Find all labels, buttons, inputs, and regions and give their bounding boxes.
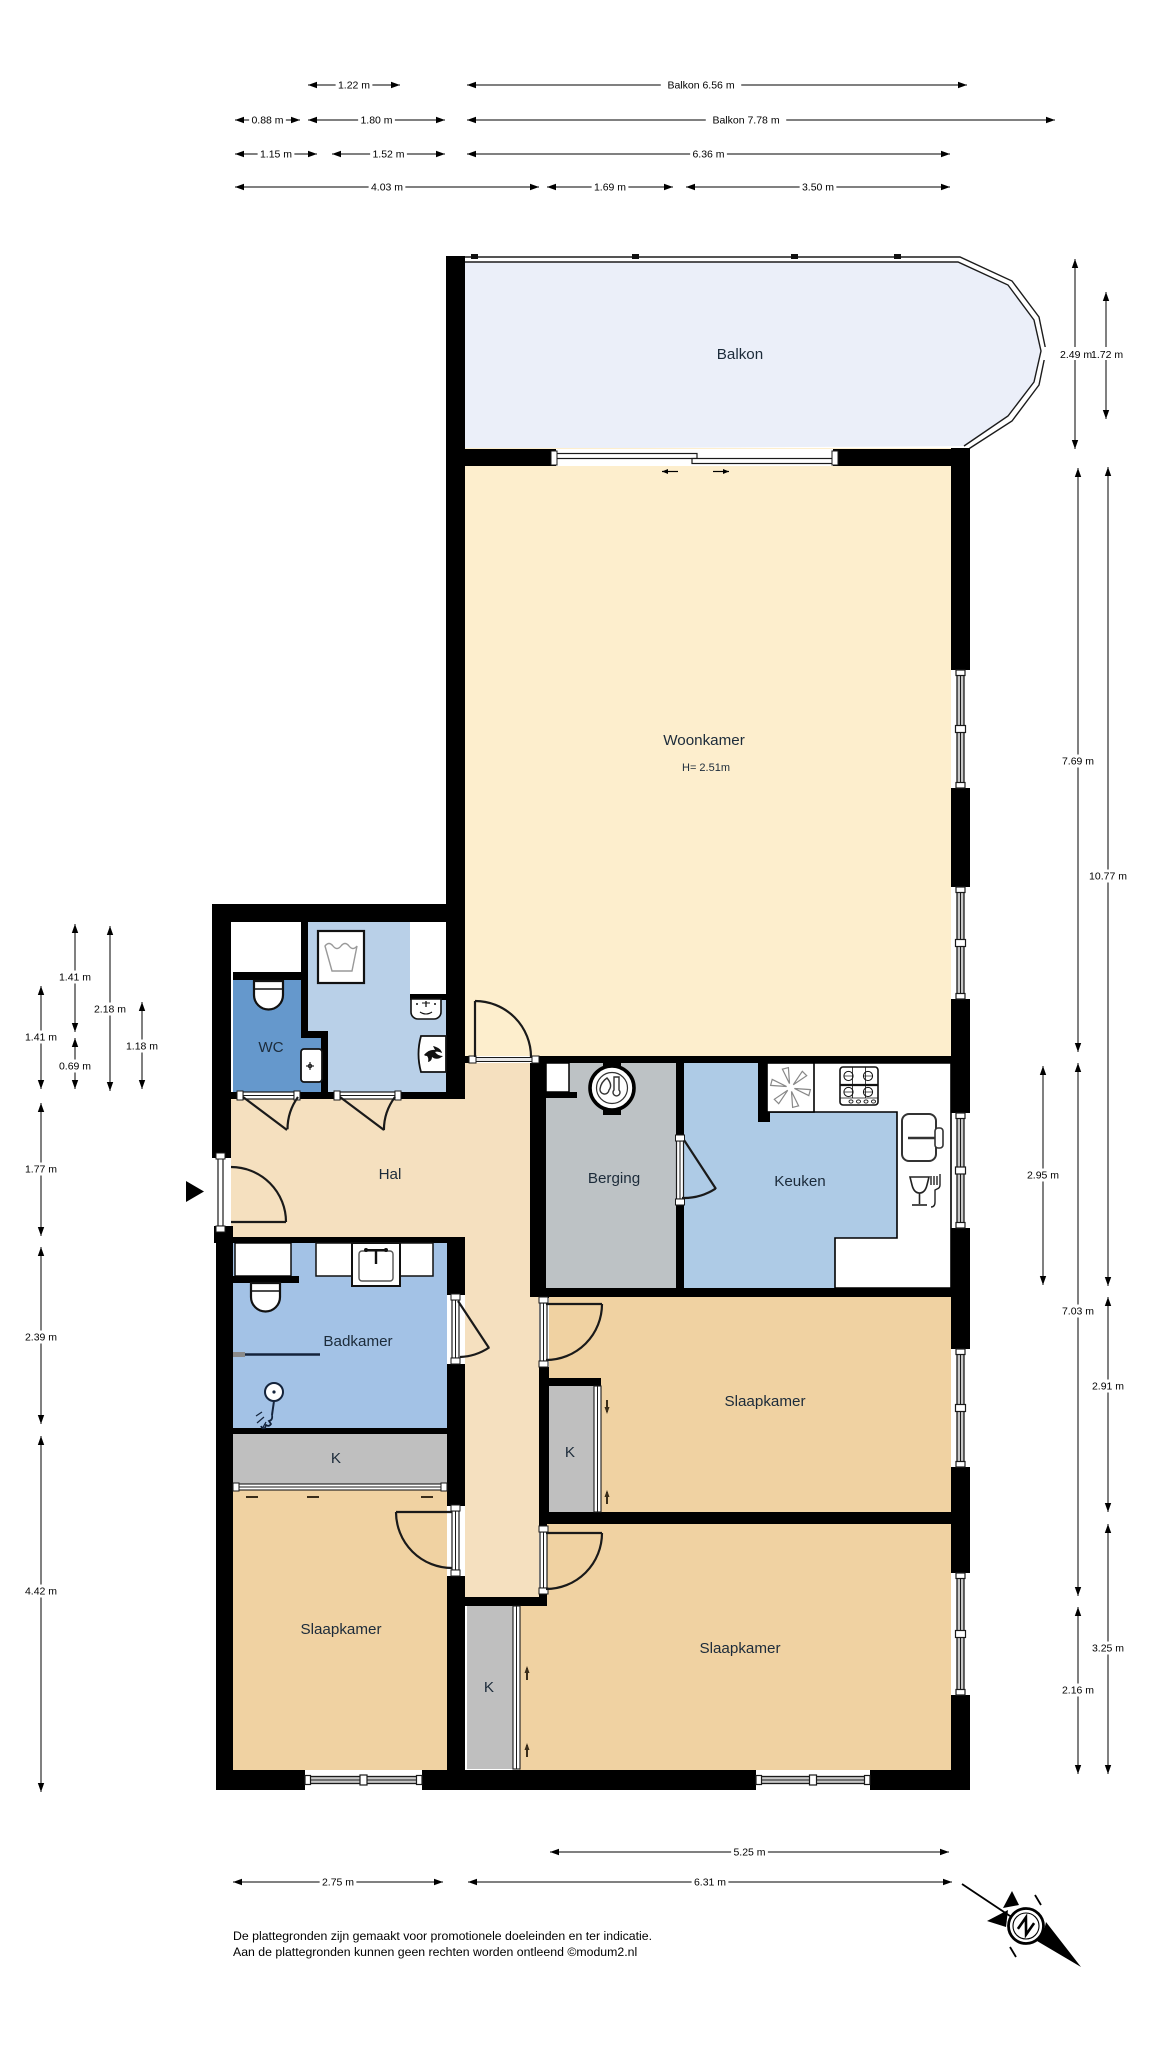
svg-text:Woonkamer: Woonkamer bbox=[663, 732, 745, 749]
svg-text:Keuken: Keuken bbox=[774, 1173, 826, 1190]
svg-text:1.69 m: 1.69 m bbox=[594, 182, 626, 194]
svg-text:6.31 m: 6.31 m bbox=[694, 1877, 726, 1889]
svg-text:3.50 m: 3.50 m bbox=[802, 182, 834, 194]
svg-text:2.18 m: 2.18 m bbox=[94, 1004, 126, 1016]
svg-text:1.41 m: 1.41 m bbox=[25, 1032, 57, 1044]
svg-text:Balkon: Balkon bbox=[717, 346, 763, 363]
svg-text:1.18 m: 1.18 m bbox=[126, 1041, 158, 1053]
svg-text:WC: WC bbox=[258, 1039, 283, 1056]
svg-text:K: K bbox=[484, 1679, 494, 1696]
svg-text:1.41 m: 1.41 m bbox=[59, 972, 91, 984]
svg-text:7.69 m: 7.69 m bbox=[1062, 756, 1094, 768]
svg-text:2.95 m: 2.95 m bbox=[1027, 1170, 1059, 1182]
svg-text:De plattegronden zijn gemaakt: De plattegronden zijn gemaakt voor promo… bbox=[233, 1929, 652, 1943]
svg-text:4.03 m: 4.03 m bbox=[371, 182, 403, 194]
svg-text:1.77 m: 1.77 m bbox=[25, 1164, 57, 1176]
svg-text:2.39 m: 2.39 m bbox=[25, 1332, 57, 1344]
svg-text:1.72 m: 1.72 m bbox=[1091, 349, 1123, 361]
svg-text:7.03 m: 7.03 m bbox=[1062, 1306, 1094, 1318]
svg-text:K: K bbox=[331, 1450, 341, 1467]
svg-text:1.22 m: 1.22 m bbox=[338, 80, 370, 92]
svg-text:2.91 m: 2.91 m bbox=[1092, 1381, 1124, 1393]
svg-text:Slaapkamer: Slaapkamer bbox=[724, 1393, 805, 1410]
svg-text:Aan de plattegronden kunnen ge: Aan de plattegronden kunnen geen rechten… bbox=[233, 1945, 637, 1959]
svg-text:Slaapkamer: Slaapkamer bbox=[699, 1640, 780, 1657]
svg-text:K: K bbox=[565, 1444, 575, 1461]
svg-text:5.25 m: 5.25 m bbox=[733, 1847, 765, 1859]
svg-text:Berging: Berging bbox=[588, 1170, 640, 1187]
svg-text:Balkon 7.78 m: Balkon 7.78 m bbox=[712, 115, 779, 127]
svg-text:2.75 m: 2.75 m bbox=[322, 1877, 354, 1889]
svg-text:H= 2.51m: H= 2.51m bbox=[682, 762, 730, 774]
svg-text:Slaapkamer: Slaapkamer bbox=[300, 1621, 381, 1638]
svg-text:0.69 m: 0.69 m bbox=[59, 1061, 91, 1073]
svg-text:Balkon 6.56 m: Balkon 6.56 m bbox=[667, 80, 734, 92]
svg-text:2.16 m: 2.16 m bbox=[1062, 1685, 1094, 1697]
svg-text:1.80 m: 1.80 m bbox=[360, 115, 392, 127]
svg-text:1.15 m: 1.15 m bbox=[260, 149, 292, 161]
svg-text:2.49 m: 2.49 m bbox=[1060, 349, 1092, 361]
svg-text:Badkamer: Badkamer bbox=[323, 1333, 392, 1350]
svg-text:0.88 m: 0.88 m bbox=[251, 115, 283, 127]
svg-text:4.42 m: 4.42 m bbox=[25, 1586, 57, 1598]
svg-text:10.77 m: 10.77 m bbox=[1089, 871, 1127, 883]
svg-text:Hal: Hal bbox=[379, 1166, 402, 1183]
svg-text:6.36 m: 6.36 m bbox=[692, 149, 724, 161]
svg-text:3.25 m: 3.25 m bbox=[1092, 1643, 1124, 1655]
svg-text:1.52 m: 1.52 m bbox=[372, 149, 404, 161]
